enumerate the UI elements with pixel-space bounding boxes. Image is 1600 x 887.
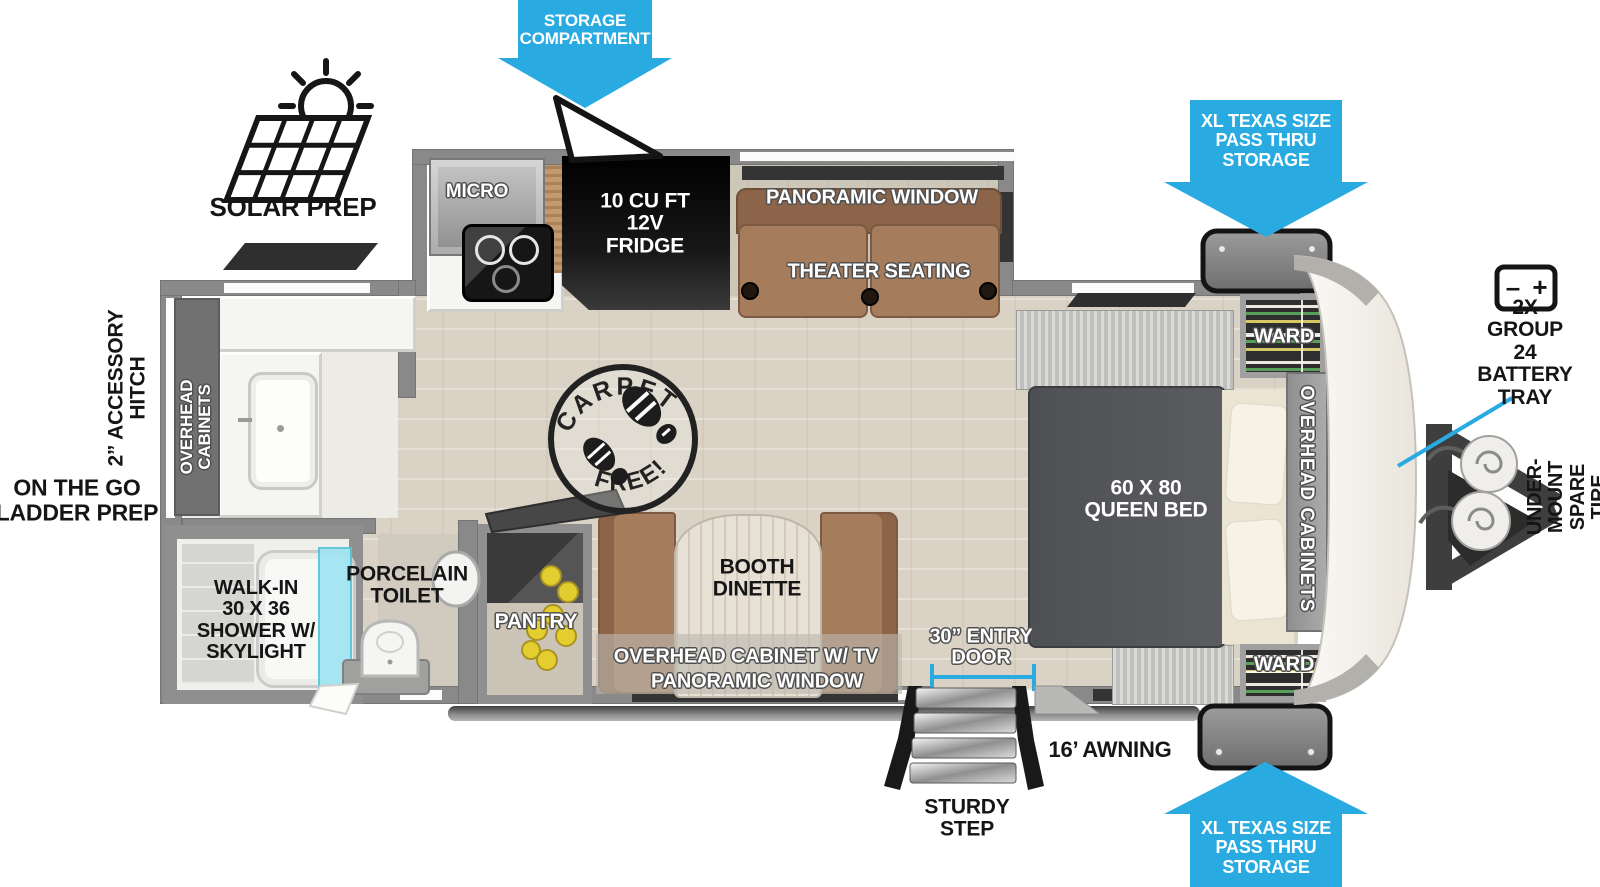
window — [740, 152, 1016, 161]
overhead-cabinet-tv-label: OVERHEAD CABINET W/ TV — [614, 646, 879, 667]
entry-door-label: 30” ENTRY DOOR — [929, 627, 1032, 670]
shower-label: WALK-IN 30 X 36 SHOWER W/ SKYLIGHT — [197, 578, 315, 664]
pass-thru-bottom-label: XL TEXAS SIZE PASS THRU STORAGE — [1201, 819, 1331, 877]
spare-tire-label: UNDER-MOUNT SPARE TIRE — [1525, 459, 1600, 536]
bath-overhead-cabinets-label: OVERHEAD CABINETS — [178, 380, 214, 475]
wardrobe-bottom-label: WARD — [1254, 654, 1314, 675]
pass-thru-door-bottom — [1200, 706, 1330, 768]
propane-tanks-icon — [1420, 436, 1517, 550]
fridge-label: 10 CU FT 12V FRIDGE — [600, 190, 689, 257]
toilet-area-floor — [378, 534, 458, 686]
burner — [492, 265, 520, 293]
pantry-shelf-shadow — [487, 533, 583, 603]
slide-left-wall — [412, 152, 428, 296]
panoramic-window-glass — [742, 166, 1004, 180]
burner — [509, 235, 539, 265]
bed-head-cabinet — [1016, 310, 1234, 390]
wardrobe-top-label: WARD — [1254, 326, 1314, 347]
booth-dinette-label: BOOTH DINETTE — [713, 557, 801, 602]
rv-floorplan: CARPET FREE! — [0, 0, 1600, 887]
theater-seating-label: THEATER SEATING — [788, 261, 971, 282]
bath-faucet — [238, 418, 252, 422]
panoramic-window-top-label: PANORAMIC WINDOW — [766, 187, 978, 208]
pillow — [1225, 402, 1290, 506]
pantry-label: PANTRY — [495, 611, 578, 633]
stove — [462, 224, 554, 302]
sturdy-step-label: STURDY STEP — [924, 797, 1009, 842]
ladder-prep-label: ON THE GO LADDER PREP — [0, 475, 158, 524]
panoramic-window-bottom-label: PANORAMIC WINDOW — [651, 671, 863, 692]
awning-bar — [448, 706, 1200, 721]
bedroom-overhead-cabinets-label: OVERHEAD CABINETS — [1296, 385, 1316, 612]
awning-label: 16’ AWNING — [1048, 738, 1171, 762]
bed-foot-cabinet — [1112, 645, 1234, 705]
bathroom-right-wall-lower — [458, 520, 478, 704]
storage-compartment-label: STORAGE COMPARTMENT — [520, 12, 651, 48]
window — [1072, 283, 1194, 293]
solar-prep-icon — [227, 61, 371, 200]
porcelain-toilet-label: PORCELAIN TOILET — [346, 564, 468, 609]
sink-drain — [277, 425, 284, 432]
window — [400, 690, 442, 700]
bath-sink — [248, 372, 318, 490]
roof-vent — [223, 243, 378, 270]
solar-prep-label: SOLAR PREP — [209, 194, 376, 222]
queen-bed-label: 60 X 80 QUEEN BED — [1084, 478, 1207, 523]
pillow — [1225, 518, 1290, 622]
battery-tray-label: 2X GROUP 24 BATTERY TRAY — [1477, 297, 1572, 409]
accessory-hitch-label: 2” ACCESSORY HITCH — [106, 309, 151, 466]
burner — [475, 235, 505, 265]
pass-thru-top-label: XL TEXAS SIZE PASS THRU STORAGE — [1201, 112, 1331, 170]
micro-label: MICRO — [446, 182, 508, 202]
window — [224, 283, 370, 293]
